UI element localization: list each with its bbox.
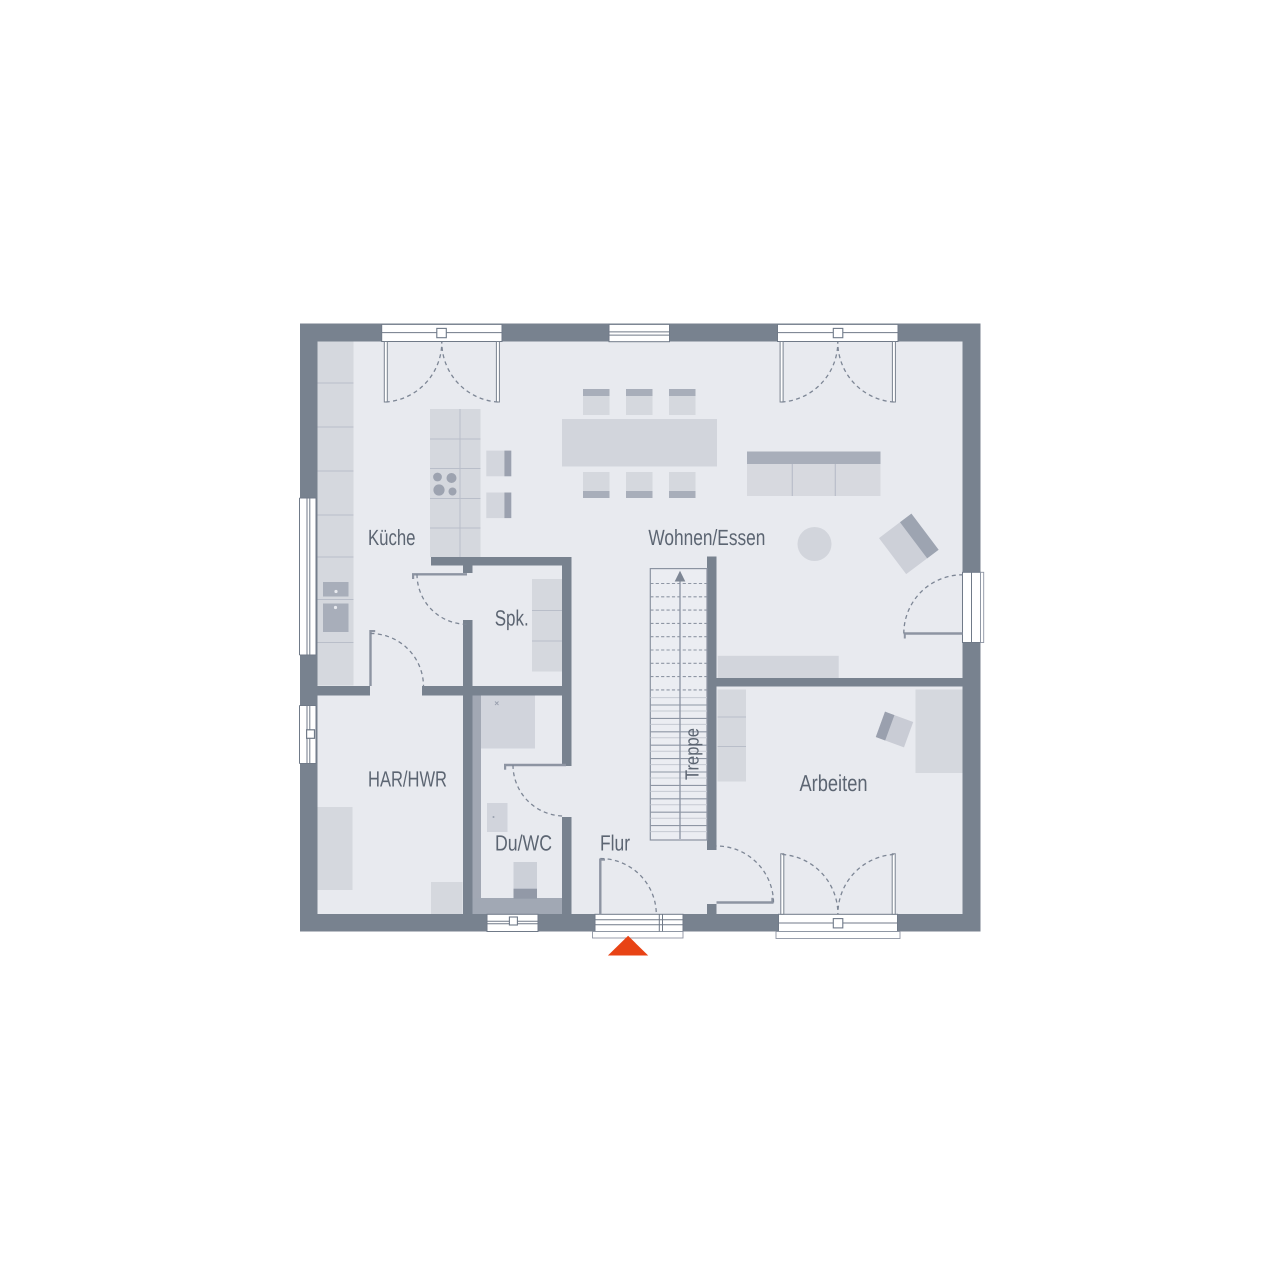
svg-text:Arbeiten: Arbeiten <box>800 770 868 796</box>
svg-text:Spk.: Spk. <box>495 606 529 631</box>
svg-text:Wohnen/Essen: Wohnen/Essen <box>648 525 765 550</box>
svg-text:Küche: Küche <box>368 525 416 550</box>
svg-text:Treppe: Treppe <box>683 728 704 780</box>
svg-text:Du/WC: Du/WC <box>495 831 552 856</box>
svg-text:Flur: Flur <box>600 831 630 856</box>
svg-text:HAR/HWR: HAR/HWR <box>368 767 447 792</box>
